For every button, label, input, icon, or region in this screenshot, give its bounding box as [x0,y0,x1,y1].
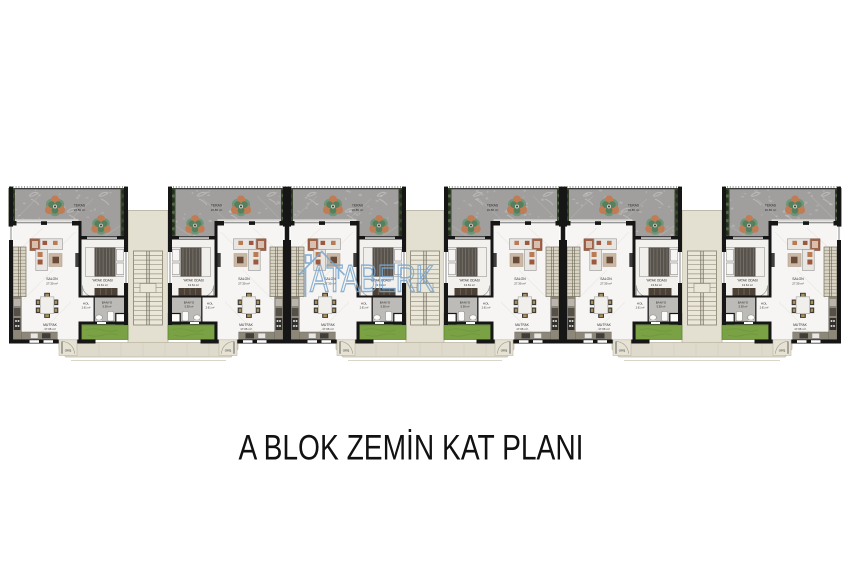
svg-text:2.61 m²: 2.61 m² [360,306,369,310]
svg-text:27.30 m²: 27.30 m² [238,282,249,286]
svg-text:2.61 m²: 2.61 m² [82,306,91,310]
svg-text:5.38 m²: 5.38 m² [103,305,112,309]
svg-text:2.61 m²: 2.61 m² [636,306,645,310]
svg-text:17.06 m²: 17.06 m² [794,327,805,331]
svg-text:5.38 m²: 5.38 m² [185,305,194,309]
svg-text:13.61 m²: 13.61 m² [464,283,475,287]
svg-text:GİRİŞ: GİRİŞ [343,350,350,353]
svg-text:ATABERK: ATABERK [310,259,434,301]
svg-text:SALON: SALON [238,277,250,281]
svg-text:HOL: HOL [483,302,490,306]
svg-text:2.61 m²: 2.61 m² [206,306,215,310]
svg-text:TERAS: TERAS [211,204,223,208]
svg-text:27.30 m²: 27.30 m² [46,282,57,286]
svg-text:HOL: HOL [361,302,368,306]
svg-text:BANYO: BANYO [380,301,391,305]
svg-text:26.86 m²: 26.86 m² [487,208,498,212]
svg-text:HOL: HOL [637,302,644,306]
svg-text:5.38 m²: 5.38 m² [381,305,390,309]
svg-text:26.86 m²: 26.86 m² [765,208,776,212]
svg-text:A BLOK ZEMİN KAT PLANI: A BLOK ZEMİN KAT PLANI [239,429,584,468]
svg-text:5.38 m²: 5.38 m² [461,305,470,309]
svg-text:26.86 m²: 26.86 m² [628,208,639,212]
svg-text:TERAS: TERAS [765,204,777,208]
svg-text:BANYO: BANYO [460,301,471,305]
svg-text:TERAS: TERAS [352,204,364,208]
svg-text:5.38 m²: 5.38 m² [739,305,748,309]
svg-text:TERAS: TERAS [487,204,499,208]
svg-text:2.61 m²: 2.61 m² [482,306,491,310]
svg-text:13.61 m²: 13.61 m² [97,283,108,287]
svg-text:SALON: SALON [792,277,804,281]
svg-text:BANYO: BANYO [738,301,749,305]
svg-text:SALON: SALON [600,277,612,281]
svg-text:GİRİŞ: GİRİŞ [779,350,786,353]
svg-text:17.06 m²: 17.06 m² [598,327,609,331]
svg-text:GİRİŞ: GİRİŞ [65,350,72,353]
svg-text:26.86 m²: 26.86 m² [211,208,222,212]
svg-text:27.30 m²: 27.30 m² [514,282,525,286]
svg-text:17.06 m²: 17.06 m² [322,327,333,331]
svg-text:27.30 m²: 27.30 m² [792,282,803,286]
svg-text:13.61 m²: 13.61 m² [742,283,753,287]
svg-text:SALON: SALON [514,277,526,281]
svg-text:HOL: HOL [207,302,214,306]
svg-text:26.86 m²: 26.86 m² [352,208,363,212]
svg-text:13.61 m²: 13.61 m² [188,283,199,287]
svg-text:TERAS: TERAS [628,204,640,208]
svg-text:27.30 m²: 27.30 m² [600,282,611,286]
svg-text:17.06 m²: 17.06 m² [516,327,527,331]
svg-text:GİRİŞ: GİRİŞ [501,350,508,353]
svg-text:BANYO: BANYO [656,301,667,305]
svg-text:BANYO: BANYO [102,301,113,305]
svg-text:13.61 m²: 13.61 m² [651,283,662,287]
svg-text:17.06 m²: 17.06 m² [240,327,251,331]
svg-text:GİRİŞ: GİRİŞ [619,350,626,353]
svg-text:HOL: HOL [83,302,90,306]
svg-text:HOL: HOL [761,302,768,306]
svg-text:17.06 m²: 17.06 m² [44,327,55,331]
svg-text:26.86 m²: 26.86 m² [74,208,85,212]
svg-text:BANYO: BANYO [184,301,195,305]
svg-text:GİRİŞ: GİRİŞ [225,350,232,353]
svg-text:5.38 m²: 5.38 m² [657,305,666,309]
svg-text:TERAS: TERAS [74,204,86,208]
svg-text:SALON: SALON [46,277,58,281]
svg-text:2.61 m²: 2.61 m² [760,306,769,310]
